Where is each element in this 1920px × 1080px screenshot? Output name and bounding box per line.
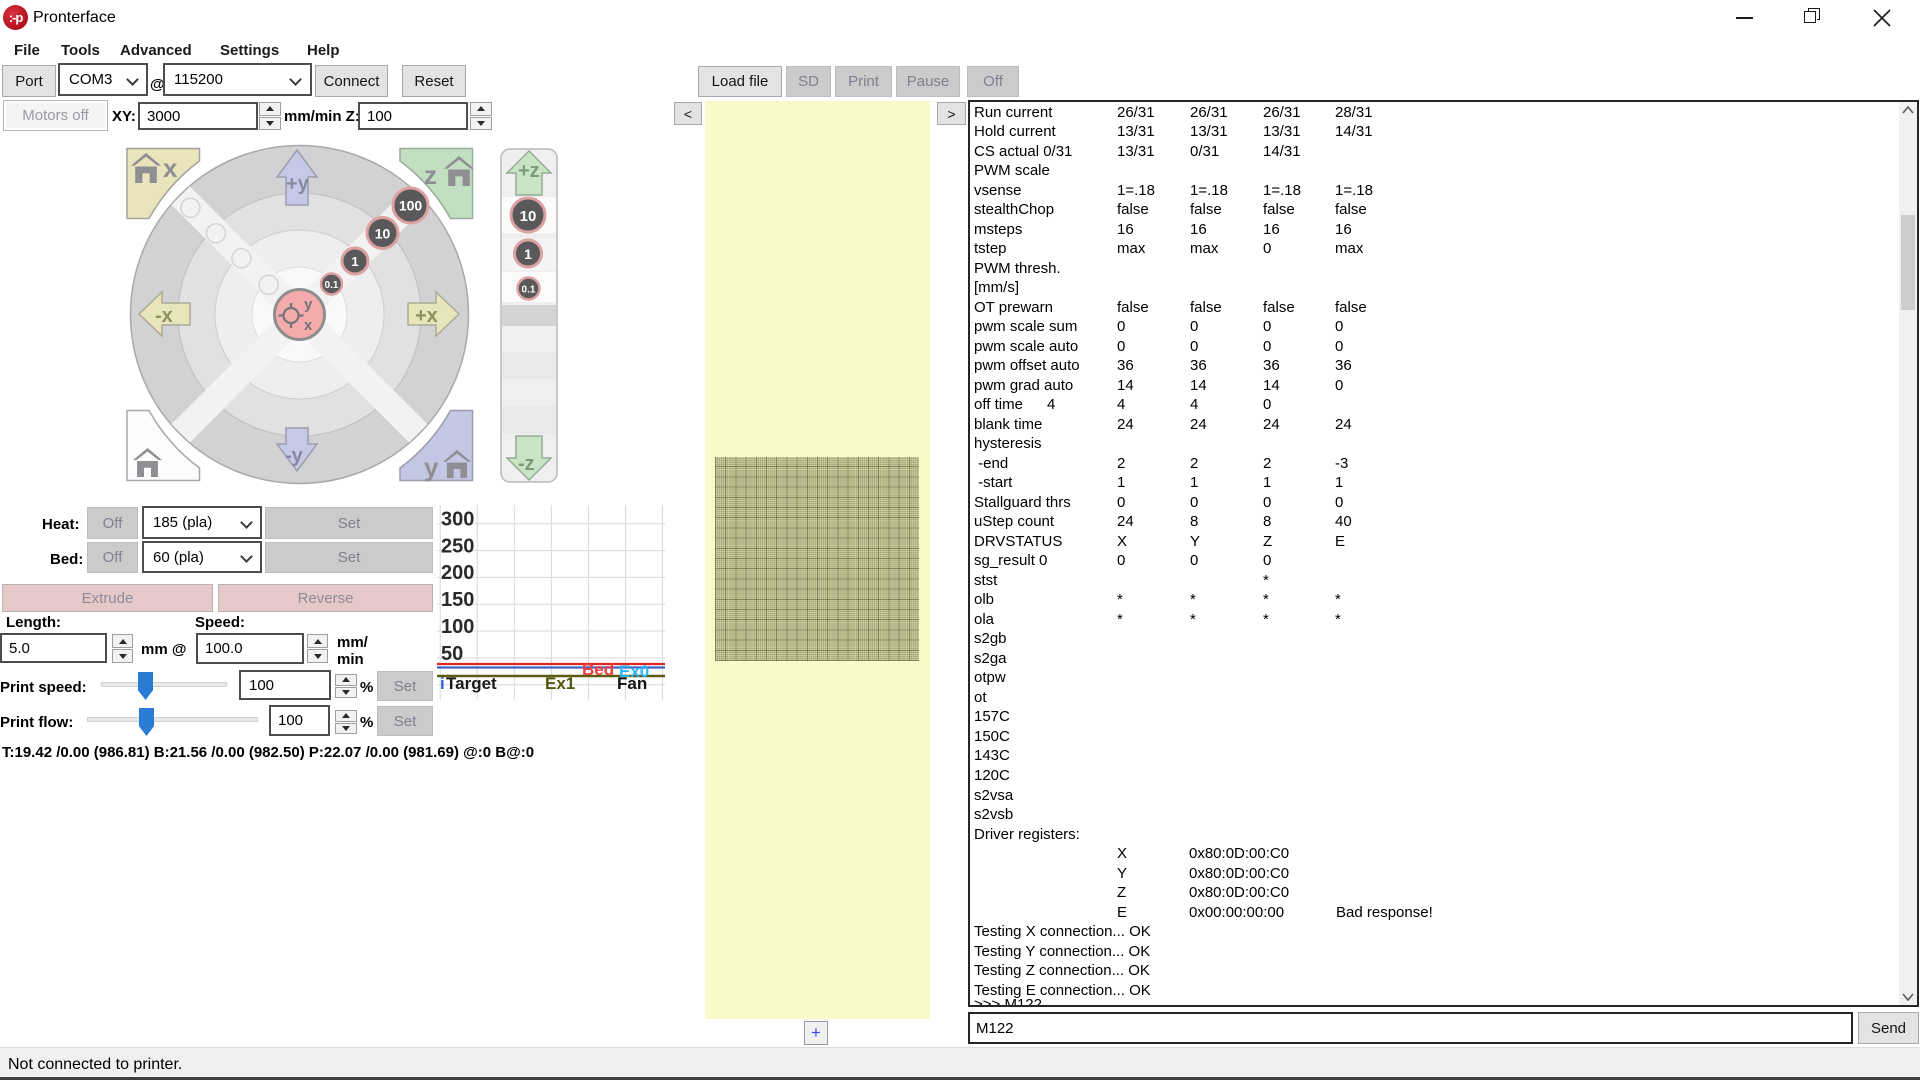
svg-text:10: 10 [520, 208, 537, 225]
svg-text:0.1: 0.1 [325, 280, 339, 291]
svg-text:10: 10 [375, 226, 391, 242]
svg-text:i: i [440, 674, 445, 693]
svg-text:z: z [424, 160, 437, 190]
svg-text:250: 250 [441, 535, 474, 557]
svg-text:100: 100 [441, 616, 474, 638]
svg-text:1: 1 [351, 254, 358, 269]
svg-text:+z: +z [518, 160, 540, 182]
svg-text:1: 1 [524, 246, 532, 262]
svg-text:+x: +x [415, 305, 438, 327]
svg-text:+y: +y [286, 173, 310, 195]
svg-text:Bed: Bed [582, 660, 614, 679]
svg-text:100: 100 [399, 198, 423, 214]
svg-text:-z: -z [518, 453, 535, 475]
svg-text:x: x [163, 153, 178, 183]
svg-text:200: 200 [441, 562, 474, 584]
svg-text:150: 150 [441, 589, 474, 611]
svg-text:Fan: Fan [617, 674, 647, 693]
svg-text:Ex1: Ex1 [545, 674, 575, 693]
svg-text:x: x [304, 317, 313, 334]
svg-text:0.1: 0.1 [522, 285, 536, 296]
svg-text:-x: -x [155, 305, 173, 327]
svg-text:50: 50 [441, 643, 463, 665]
svg-text:300: 300 [441, 509, 474, 531]
svg-text:-y: -y [285, 445, 304, 467]
svg-text:y: y [424, 452, 439, 482]
svg-text:Target: Target [446, 674, 497, 693]
svg-text:y: y [304, 296, 313, 313]
